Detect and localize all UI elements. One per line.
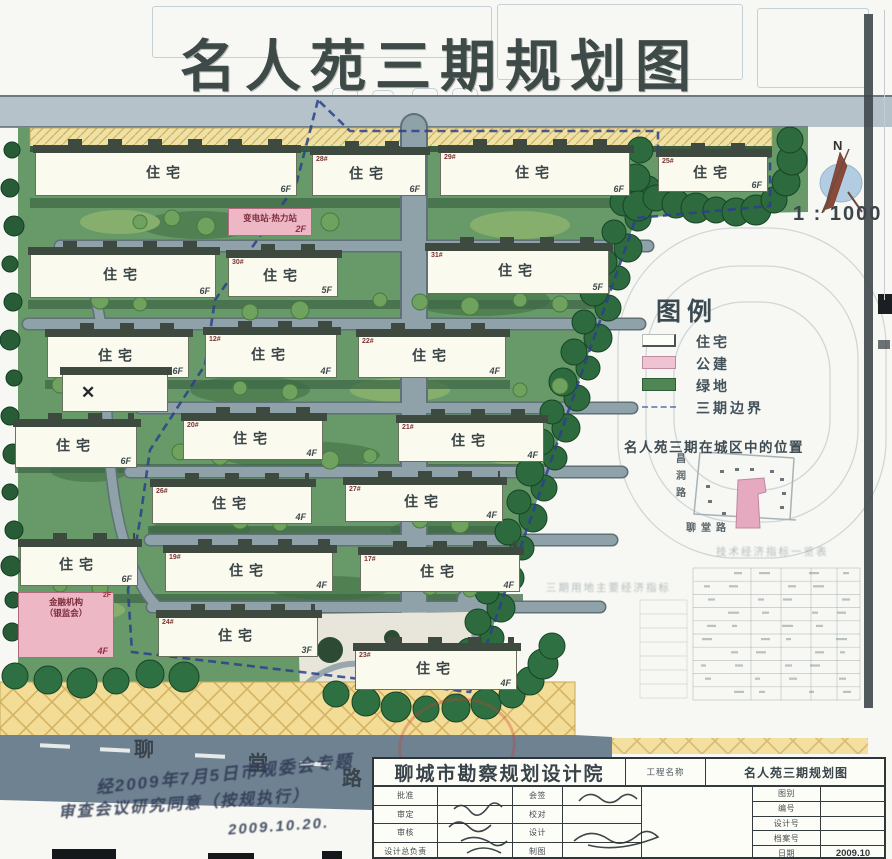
scan-blob [322,851,342,859]
residential-building: 28#住宅6F [312,154,426,196]
titleblock-role-label: 设计总负责 [374,843,438,859]
titleblock-role-label: 设计 [513,824,563,843]
titleblock-meta-value: 2009.10 [821,846,886,859]
residential-building: 25#住宅6F [658,156,768,192]
titleblock-role-label: 会签 [513,787,563,806]
public-building: 2F金融机构（银监会）4F [18,592,114,658]
green-swatch [642,378,676,391]
titleblock-meta-label: 档案号 [753,831,821,846]
titleblock-role-label: 审定 [374,806,438,825]
public-building: 变电站·热力站2F [228,208,312,236]
residential-building: 12#住宅4F [205,334,337,378]
institute-name: 聊城市勘察规划设计院 [394,759,604,786]
x-mark-icon: ✕ [81,383,95,403]
inset-caption: 名人苑三期在城区中的位置 [624,436,804,456]
residential-building: 住宅6F [15,426,137,468]
titleblock-meta-value [821,787,886,802]
titleblock-meta-label: 日期 [753,846,821,859]
titleblock-role-label: 制图 [513,843,563,859]
titleblock-role-label: 审核 [374,824,438,843]
residential-building: 19#住宅4F [165,552,333,592]
residential-building: 22#住宅4F [358,336,506,378]
boundary-swatch [642,406,676,408]
residential-building: 26#住宅4F [152,486,312,524]
residential-building: 29#住宅6F [440,152,630,196]
residential-building: 21#住宅4F [398,422,544,462]
scanned-planning-map: N 昌 润 路 聊堂路 [0,0,892,859]
scan-mark [878,340,890,349]
project-name-label: 工程名称 [646,766,684,778]
residential-building: 23#住宅4F [355,650,517,690]
scan-edge-bar [864,14,873,708]
titleblock-meta-value [821,817,886,832]
residential-building: 住宅6F [20,546,138,586]
residential-building: 20#住宅4F [183,420,323,460]
titleblock-signature-cell [563,843,642,859]
residential-swatch [642,334,676,347]
residential-building: 24#住宅3F [158,617,318,657]
scan-mark [878,294,892,314]
titleblock-meta-label: 图别 [753,787,821,802]
titleblock-role-label: 校对 [513,806,563,825]
scan-blob [52,849,116,859]
residential-building: 住宅6F [35,152,297,196]
residential-building: 27#住宅4F [345,484,503,522]
titleblock-meta-label: 编号 [753,802,821,817]
titleblock-role-label: 批准 [374,787,438,806]
titleblock-signature-cell [563,806,642,825]
public-swatch [642,356,676,369]
titleblock-signature-cell [563,824,642,843]
titleblock-signature-cell [438,787,513,806]
ghost-caption-left: 三期用地主要经济指标 [546,580,671,595]
ghost-caption-right: 技术经济指标一览表 [716,544,829,559]
titleblock-signature-cell [563,787,642,806]
titleblock-meta-value [821,831,886,846]
project-name-value: 名人苑三期规划图 [744,764,848,781]
residential-building: 31#住宅5F [427,250,609,294]
club-building: ✕ [62,374,168,412]
titleblock-signature-cell [438,843,513,859]
page-title: 名人苑三期规划图 [150,22,730,103]
titleblock-meta-value [821,802,886,817]
scan-blob [208,853,254,859]
titleblock-signature-cell [438,824,513,843]
residential-building: 住宅6F [30,254,216,298]
residential-building: 30#住宅5F [228,257,338,297]
titleblock-empty-cell [642,787,753,859]
scan-edge-line [884,10,885,300]
titleblock-meta-label: 设计号 [753,817,821,832]
drawing-title-block: 聊城市勘察规划设计院 工程名称 名人苑三期规划图 批准会签审定校对审核设计设计总… [372,757,886,859]
residential-building: 17#住宅4F [360,554,520,592]
legend-title: 图例 [656,292,718,328]
titleblock-signature-cell [438,806,513,825]
